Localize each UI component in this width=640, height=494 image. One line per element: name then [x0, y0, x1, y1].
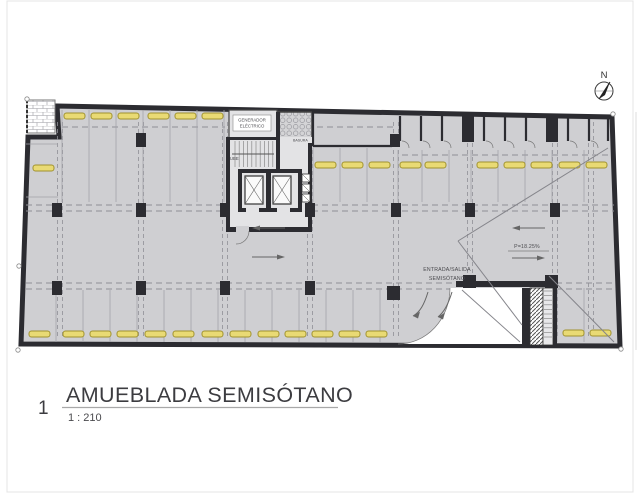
column [220, 203, 230, 217]
wheel-stop [342, 162, 363, 168]
generator-label-line2: ELÉCTRICO [240, 124, 265, 129]
detail-number: 1 [38, 398, 49, 419]
wheel-stop [173, 331, 194, 337]
column [387, 286, 400, 300]
wheel-stop [29, 331, 50, 337]
duct-boxes [302, 174, 310, 202]
wheel-stop [145, 331, 166, 337]
drawing-sheet: GENERADOR ELÉCTRICO SUBE [0, 0, 640, 494]
column [52, 281, 62, 295]
plan-title: AMUEBLADA SEMISÓTANO [66, 382, 353, 407]
north-arrow: N [595, 70, 613, 100]
wheel-stop [118, 113, 139, 119]
column [545, 275, 558, 288]
wheel-stop [117, 331, 138, 337]
wheel-stop [315, 162, 336, 168]
ramp-slope-label: P=18.25% [514, 244, 540, 250]
wheel-stop [400, 162, 421, 168]
service-stair [543, 288, 553, 345]
trash-label: BASURA [293, 139, 308, 143]
wheel-stop [91, 113, 112, 119]
plan-scale: 1 : 210 [68, 412, 102, 424]
wheel-stop [175, 113, 196, 119]
entrance-label-line2: SEMISÓTANO [429, 275, 465, 282]
wheel-stop [63, 331, 84, 337]
wheel-stop [258, 331, 279, 337]
lobby-door-opening [236, 226, 249, 233]
generator-label-line1: GENERADOR [238, 118, 266, 123]
column [136, 281, 146, 295]
generator-room: GENERADOR ELÉCTRICO [229, 110, 277, 140]
wheel-stop [477, 162, 498, 168]
wheel-stop [563, 330, 584, 336]
column [550, 203, 560, 217]
wheel-stop [504, 162, 525, 168]
entrance-label-line1: ENTRADA/SALIDA [423, 267, 471, 273]
elevator-car-1 [245, 176, 263, 204]
wheel-stop [90, 331, 111, 337]
column [305, 281, 315, 295]
wheel-stop [148, 113, 169, 119]
column [390, 134, 400, 147]
wheel-stop [366, 331, 387, 337]
title-block: 1 AMUEBLADA SEMISÓTANO 1 : 210 [38, 382, 353, 424]
wheel-stop [339, 331, 360, 337]
column [220, 281, 230, 295]
column [136, 133, 146, 147]
wheel-stop [531, 162, 552, 168]
column [465, 203, 475, 217]
wheel-stop [369, 162, 390, 168]
wheel-stop [285, 331, 306, 337]
wheel-stop [425, 162, 446, 168]
elevator-door-opening [246, 206, 259, 213]
wheel-stop [33, 165, 54, 171]
north-label: N [601, 70, 608, 81]
wheel-stop [312, 331, 333, 337]
column [391, 203, 401, 217]
column [305, 203, 315, 217]
column [136, 203, 146, 217]
floor-plan-svg: GENERADOR ELÉCTRICO SUBE [0, 0, 640, 494]
wheel-stop [586, 162, 607, 168]
column [52, 203, 62, 217]
wheel-stop [64, 113, 85, 119]
elevator-door-opening [277, 206, 290, 213]
wheel-stop [202, 331, 223, 337]
hatched-wall-section [530, 288, 543, 345]
column [462, 114, 474, 142]
wheel-stop [230, 331, 251, 337]
wheel-stop [202, 113, 223, 119]
column [546, 114, 558, 142]
exterior-paving [27, 100, 55, 133]
elevator-car-2 [273, 176, 291, 204]
